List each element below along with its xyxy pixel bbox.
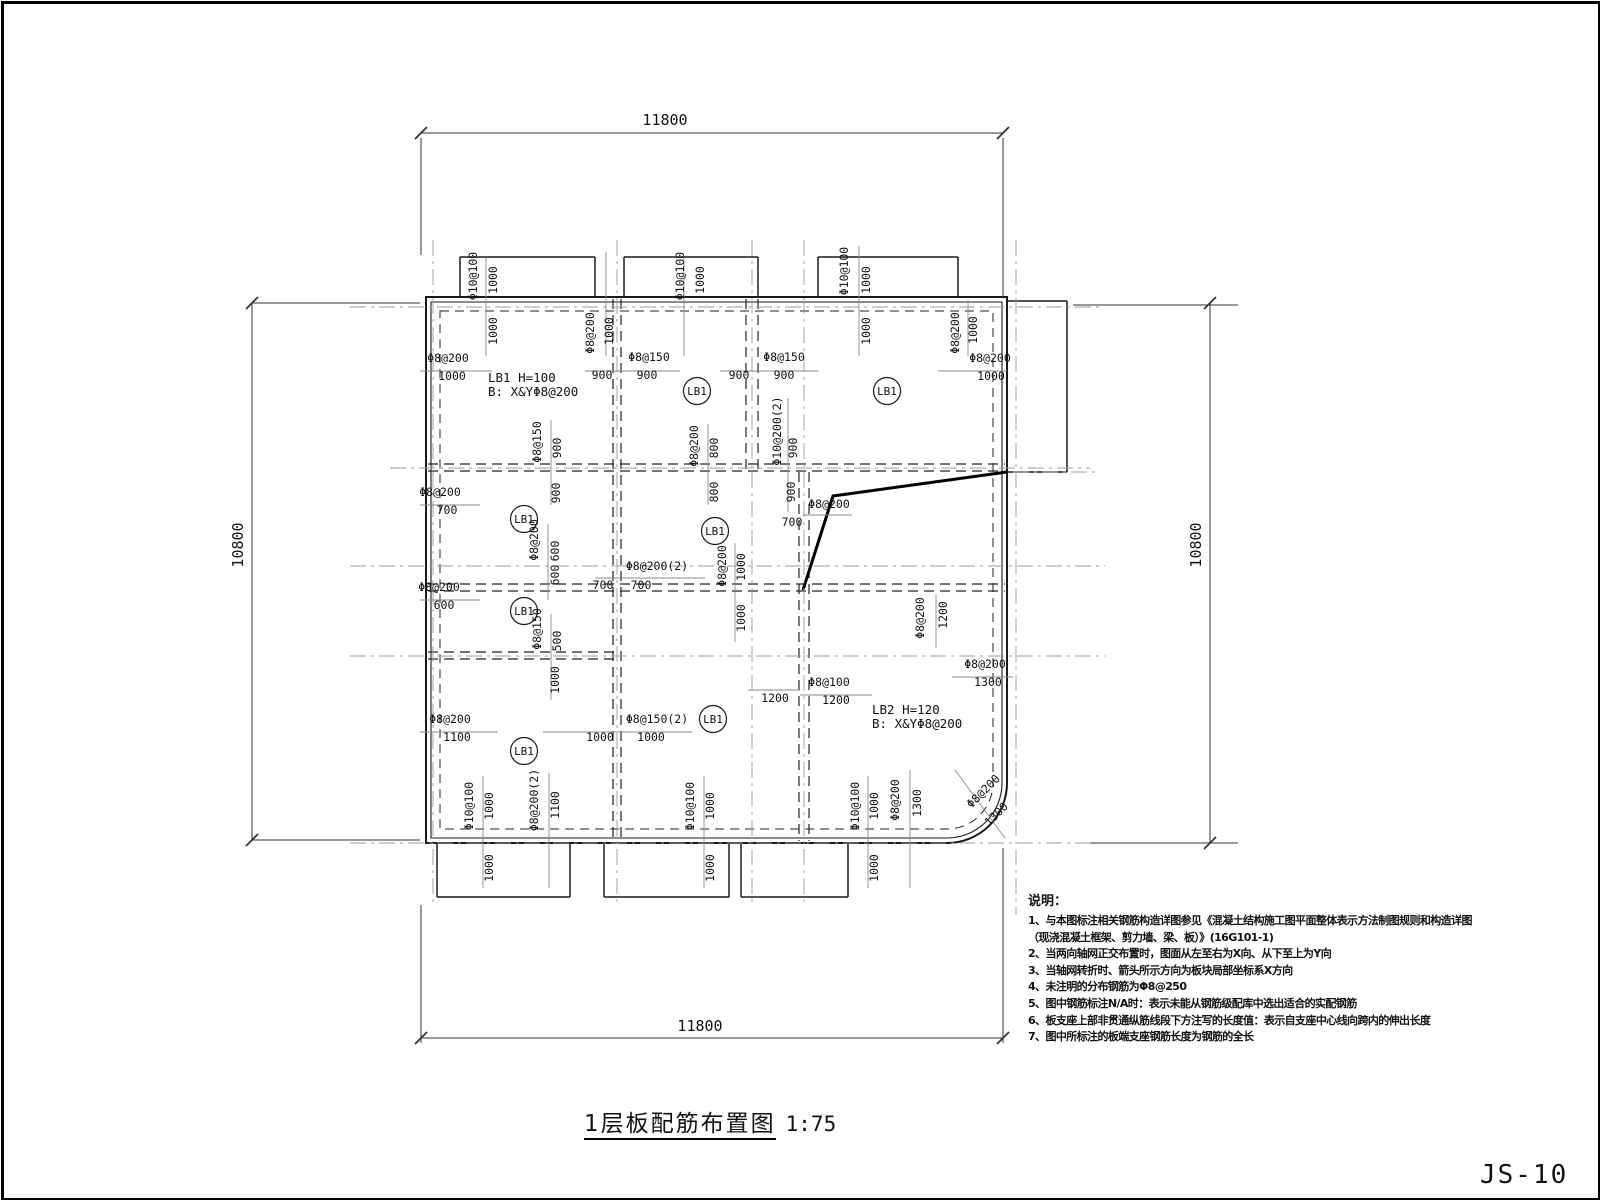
rebar-label: 1000	[977, 369, 1005, 383]
dimension-text: 11800	[642, 111, 687, 129]
rebar-label: 1200	[761, 691, 789, 705]
sheet-number: JS-10	[1480, 1160, 1568, 1190]
rebar-label: 1300	[910, 789, 924, 817]
rebar-label: 1000	[859, 266, 873, 294]
panel-tag: LB1	[514, 745, 534, 758]
rebar-label: Φ8@200	[969, 351, 1011, 365]
rebar-label: Φ8@200	[948, 312, 962, 354]
rebar-label: 700	[782, 515, 803, 529]
rebar-label: 1000	[486, 266, 500, 294]
rebar-label: 900	[729, 368, 750, 382]
rebar-label: 1000	[602, 317, 616, 345]
rebar-label: 1000	[693, 266, 707, 294]
note-line: （现浇混凝土框架、剪力墙、梁、板）》(16G101-1)	[1028, 930, 1498, 947]
rebar-label: Φ10@100	[848, 782, 862, 831]
rebar-label: 1200	[822, 693, 850, 707]
rebar-label: 900	[637, 368, 658, 382]
note-line: 1、与本图标注相关钢筋构造详图参见《混凝土结构施工图平面整体表示方法制图规则和构…	[1028, 913, 1498, 930]
rebar-label: 1300	[974, 675, 1002, 689]
rebar-label: Φ8@150	[530, 608, 544, 650]
slab-break-line	[803, 472, 1007, 590]
rebar-label: 1000	[859, 317, 873, 345]
rebar-label: 1000	[703, 854, 717, 882]
rebar-label: Φ10@100	[673, 252, 687, 301]
notes-block: 说明： 1、与本图标注相关钢筋构造详图参见《混凝土结构施工图平面整体表示方法制图…	[1028, 890, 1498, 1046]
rebar-label: 1000	[734, 604, 748, 632]
rebar-label: 1000	[867, 854, 881, 882]
rebar-label: 1000	[966, 316, 980, 344]
drawing-title: 1层板配筋布置图1:75	[584, 1104, 836, 1138]
notes-heading: 说明：	[1028, 890, 1498, 909]
rebar-label: 900	[786, 438, 800, 459]
rebar-label: Φ8@200(2)	[527, 769, 541, 831]
rebar-label: 1300	[981, 799, 1011, 829]
rebar-label: Φ8@200	[419, 485, 461, 499]
panel-spec-line: B: X&YΦ8@200	[872, 716, 962, 731]
rebar-label: Φ8@200	[583, 312, 597, 354]
rebar-label: Φ8@100	[808, 675, 850, 689]
note-line: 6、板支座上部非贯通纵筋线段下方注写的长度值：表示自支座中心线向跨内的伸出长度	[1028, 1013, 1498, 1030]
rebar-label: 1000	[586, 730, 614, 744]
rebar-label: 1100	[443, 730, 471, 744]
rebar-label: 700	[437, 503, 458, 517]
rebar-label: 900	[549, 483, 563, 504]
rebar-label: 1000	[867, 792, 881, 820]
note-line: 7、图中所标注的板端支座钢筋长度为钢筋的全长	[1028, 1029, 1498, 1046]
rebar-label: 1000	[637, 730, 665, 744]
rebar-label: Φ8@200	[429, 712, 471, 726]
rebar-label: Φ8@150	[763, 350, 805, 364]
rebar-label: 800	[707, 482, 721, 503]
rebar-label: 800	[707, 438, 721, 459]
rebar-label: 1100	[548, 791, 562, 819]
rebar-label: 1000	[734, 553, 748, 581]
rebar-label: Φ8@200(2)	[626, 559, 688, 573]
dimension-text: 11800	[677, 1017, 722, 1035]
rebar-label: Φ8@200	[418, 580, 460, 594]
dimension-text: 10800	[1187, 522, 1205, 567]
rebar-label: 1000	[482, 792, 496, 820]
panel-tag: LB1	[877, 385, 897, 398]
rebar-label: 900	[550, 438, 564, 459]
rebar-label: Φ8@150	[530, 421, 544, 463]
rebar-label: Φ8@200	[888, 779, 902, 821]
rebar-label: Φ8@200	[808, 497, 850, 511]
note-line: 4、未注明的分布钢筋为Φ8@250	[1028, 979, 1498, 996]
panel-tag: LB1	[687, 385, 707, 398]
note-line: 5、图中钢筋标注N/A时：表示未能从钢筋级配库中选出适合的实配钢筋	[1028, 996, 1498, 1013]
rebar-label: 700	[631, 578, 652, 592]
rebar-label: 1000	[438, 369, 466, 383]
rebar-label: 600	[548, 565, 562, 586]
rebar-label: 1000	[486, 317, 500, 345]
rebar-label: 1000	[548, 666, 562, 694]
drawing-title-text: 1层板配筋布置图	[584, 1111, 776, 1140]
drawing-scale: 1:75	[786, 1112, 837, 1136]
panel-spec-line: LB2 H=120	[872, 702, 940, 717]
drawing-sheet: 11800118001080010800LB1LB1LB1LB1LB1LB1LB…	[0, 0, 1600, 1200]
rebar-label: Φ8@200	[715, 545, 729, 587]
rebar-label: Φ8@150(2)	[626, 712, 688, 726]
rebar-label: 600	[434, 598, 455, 612]
rebar-label: 900	[784, 482, 798, 503]
panel-spec-line: LB1 H=100	[488, 370, 556, 385]
note-line: 2、当两向轴网正交布置时，图面从左至右为X向、从下至上为Y向	[1028, 946, 1498, 963]
rebar-label: Φ8@200	[527, 519, 541, 561]
rebar-label: 900	[774, 368, 795, 382]
dimension-text: 10800	[229, 522, 247, 567]
rebar-label: 1000	[703, 792, 717, 820]
rebar-label: Φ8@150	[628, 350, 670, 364]
rebar-label: 1200	[936, 601, 950, 629]
rebar-label: Φ10@200(2)	[770, 396, 784, 465]
rebar-label: 600	[548, 541, 562, 562]
rebar-label: Φ10@100	[837, 247, 851, 296]
rebar-label: Φ8@200	[913, 597, 927, 639]
panel-spec-line: B: X&YΦ8@200	[488, 384, 578, 399]
rebar-label: Φ8@200	[687, 425, 701, 467]
rebar-label: Φ10@100	[462, 782, 476, 831]
panel-tag: LB1	[703, 713, 723, 726]
rebar-label: Φ8@200	[964, 657, 1006, 671]
rebar-label: Φ10@100	[466, 252, 480, 301]
panel-tag: LB1	[705, 525, 725, 538]
rebar-label: 1000	[482, 854, 496, 882]
rebar-label: Φ10@100	[683, 782, 697, 831]
rebar-label: 500	[550, 631, 564, 652]
rebar-label: 700	[593, 578, 614, 592]
rebar-label: 900	[592, 368, 613, 382]
rebar-label: Φ8@200	[427, 351, 469, 365]
note-line: 3、当轴网转折时、箭头所示方向为板块局部坐标系X方向	[1028, 963, 1498, 980]
